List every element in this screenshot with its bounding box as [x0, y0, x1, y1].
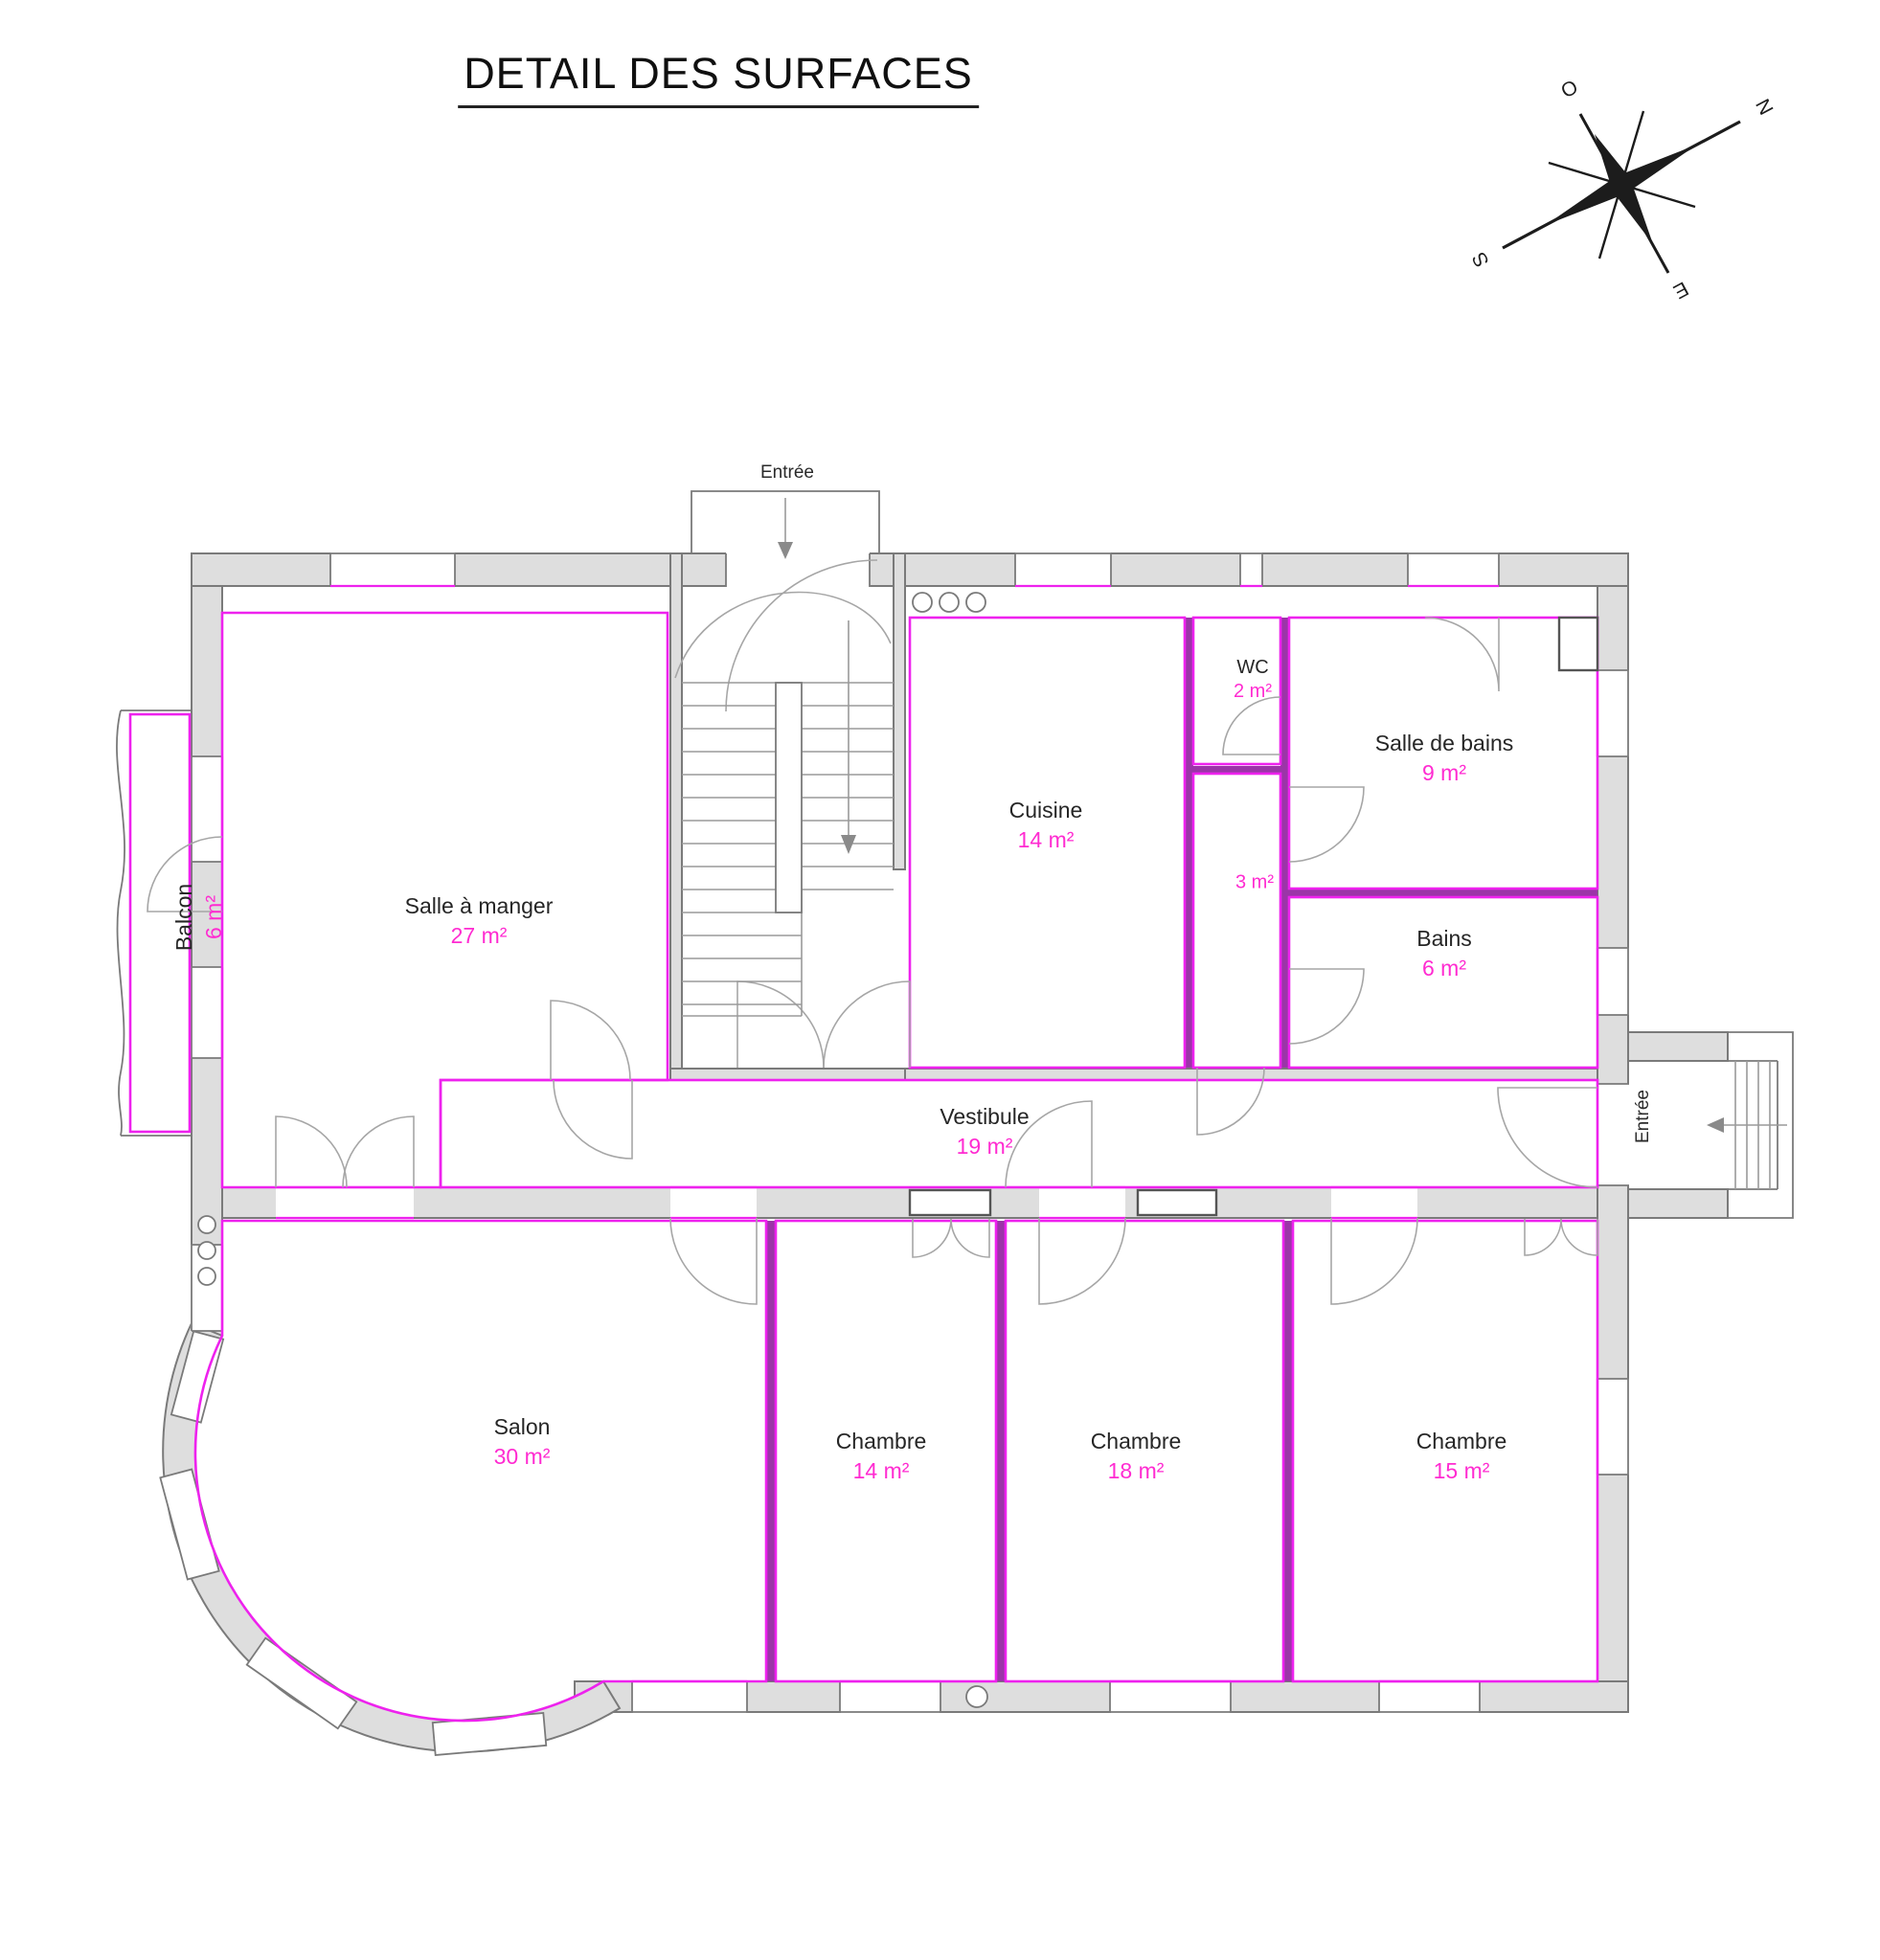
- door-opening: [276, 1186, 414, 1219]
- room-name: WC: [1234, 656, 1272, 680]
- room-outline-couloir: [1193, 774, 1280, 1068]
- room-label-chambre-2: Chambre 18 m²: [1091, 1427, 1182, 1486]
- room-area: 2 m²: [1234, 680, 1272, 704]
- compass-east-label: E: [1669, 277, 1691, 303]
- window: [1597, 948, 1629, 1015]
- room-label-salon: Salon 30 m²: [494, 1412, 551, 1472]
- window: [1015, 552, 1111, 587]
- room-area: 6 m²: [199, 884, 229, 951]
- entrance-label-top: Entrée: [760, 462, 814, 484]
- door-opening: [191, 756, 223, 862]
- room-area: 14 m²: [836, 1456, 927, 1486]
- door-opening: [1039, 1186, 1125, 1219]
- room-label-cuisine: Cuisine 14 m²: [1009, 796, 1083, 855]
- window: [1240, 552, 1262, 587]
- room-label-vestibule: Vestibule 19 m²: [940, 1102, 1029, 1161]
- main-staircase: [682, 620, 894, 1016]
- compass-north-label: N: [1751, 96, 1777, 119]
- room-name: Salle de bains: [1375, 729, 1514, 758]
- page-title: DETAIL DES SURFACES: [458, 49, 979, 108]
- window: [330, 552, 455, 587]
- room-area: 15 m²: [1416, 1456, 1507, 1486]
- porthole-windows: [198, 593, 987, 1707]
- door-opening: [1331, 1186, 1417, 1219]
- floor-plan-drawing: N O S E: [0, 0, 1880, 1960]
- room-name: Balcon: [170, 884, 199, 951]
- door-opening: [1597, 1084, 1629, 1185]
- room-outline-salon: [195, 1221, 766, 1721]
- window: [840, 1680, 940, 1713]
- room-label-bains: Bains 6 m²: [1416, 924, 1472, 983]
- room-label-salle-a-manger: Salle à manger 27 m²: [405, 891, 554, 951]
- room-name: Vestibule: [940, 1102, 1029, 1132]
- window: [1597, 1379, 1629, 1475]
- room-name: Chambre: [836, 1427, 927, 1456]
- window: [1597, 670, 1629, 756]
- compass-south-label: S: [1468, 248, 1494, 270]
- compass-rose: N O S E: [1468, 76, 1778, 303]
- window: [1408, 552, 1499, 587]
- room-area: 6 m²: [1416, 954, 1472, 983]
- room-label-chambre-3: Chambre 15 m²: [1416, 1427, 1507, 1486]
- room-label-salle-de-bains: Salle de bains 9 m²: [1375, 729, 1514, 788]
- room-area: 3 m²: [1235, 871, 1274, 895]
- entry-porch-top: [691, 491, 879, 559]
- room-name: Salon: [494, 1412, 551, 1442]
- window: [191, 967, 223, 1058]
- entrance-label-side: Entrée: [1633, 1090, 1654, 1143]
- window: [1110, 1680, 1231, 1713]
- bay-wall-band: [163, 1323, 620, 1751]
- window: [1379, 1680, 1480, 1713]
- room-name: Salle à manger: [405, 891, 554, 921]
- compass-west-label: O: [1557, 76, 1581, 102]
- room-name: Chambre: [1416, 1427, 1507, 1456]
- room-label-couloir: 3 m²: [1235, 871, 1274, 895]
- room-name: Cuisine: [1009, 796, 1083, 825]
- room-area: 14 m²: [1009, 825, 1083, 855]
- room-label-balcon: Balcon 6 m²: [170, 884, 229, 951]
- room-label-chambre-1: Chambre 14 m²: [836, 1427, 927, 1486]
- room-name: Chambre: [1091, 1427, 1182, 1456]
- room-area: 30 m²: [494, 1442, 551, 1472]
- floor-plan-page: N O S E DETAIL DES SURFACES Entrée Entré…: [0, 0, 1880, 1960]
- bay-windows: [160, 1331, 546, 1755]
- room-area: 27 m²: [405, 921, 554, 951]
- room-area: 18 m²: [1091, 1456, 1182, 1486]
- window: [632, 1680, 747, 1713]
- room-label-wc: WC 2 m²: [1234, 656, 1272, 704]
- room-area: 9 m²: [1375, 758, 1514, 788]
- room-name: Bains: [1416, 924, 1472, 954]
- door-opening: [670, 1186, 757, 1219]
- room-area: 19 m²: [940, 1132, 1029, 1161]
